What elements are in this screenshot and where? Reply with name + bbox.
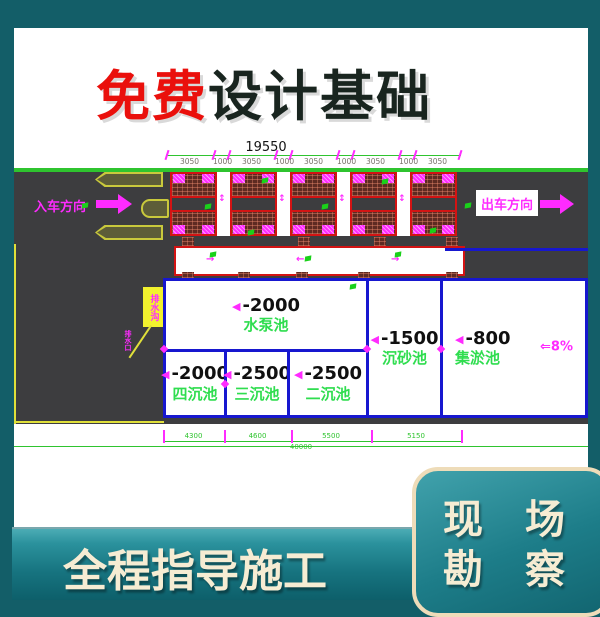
drain-connector: [298, 237, 310, 246]
dim-seg: 1000: [399, 157, 414, 166]
pool-depth: -2000: [171, 364, 229, 385]
dim-seg: 1000: [275, 157, 290, 166]
pool-name: 集淤池: [455, 349, 500, 367]
pool-sediment-4: ◀-2000 四沉池: [163, 349, 227, 418]
wash-bay: [350, 172, 397, 236]
dim-grand-value: 40000: [14, 443, 588, 451]
dim-seg: 3050: [166, 157, 213, 166]
pool-name: 沉砂池: [382, 349, 427, 367]
bay-lane: ↕: [217, 172, 230, 236]
bay-lane: ↕: [337, 172, 350, 236]
dim-seg: 3050: [290, 157, 337, 166]
dim-seg: 5500: [291, 432, 371, 440]
pool-depth: -800: [465, 329, 510, 350]
depth-marker-icon: ◀: [455, 334, 463, 345]
bay-lane: ↕: [277, 172, 290, 236]
exit-direction-label: 出车方向: [481, 194, 533, 213]
dimension-total-top: 19550: [166, 140, 366, 155]
depth-marker-icon: ◀: [232, 301, 240, 312]
wash-bay: [290, 172, 337, 236]
dim-seg: 5150: [371, 432, 461, 440]
entry-direction-label: 入车方向: [34, 196, 86, 215]
drain-channel: → ← →: [174, 246, 465, 276]
exit-direction-box: 出车方向: [476, 190, 538, 216]
page-title: 免费设计基础: [14, 52, 514, 131]
title-rest: 设计基础: [208, 65, 432, 128]
exit-arrow-icon: [540, 200, 560, 208]
title-highlight: 免费: [96, 65, 208, 128]
ground-edge-line: [14, 421, 164, 423]
wall-line: [445, 248, 588, 251]
drain-callout-note: 排水口: [124, 330, 131, 351]
entry-arrow-icon: [96, 200, 118, 208]
pool-sludge-collect: ◀-800 集淤池 ⇐8%: [440, 278, 588, 418]
traffic-island: [95, 172, 163, 187]
depth-marker-icon: ◀: [223, 369, 231, 380]
promo-poster: 免费设计基础 19550 3050 1000 3050 1000 3050 10…: [0, 0, 600, 600]
dim-seg: 3050: [414, 157, 461, 166]
footer-band-label: 全程指导施工: [30, 535, 360, 599]
pool-sediment-2: ◀-2500 二沉池: [287, 349, 369, 418]
traffic-island: [95, 225, 163, 240]
dimension-line-bottom: 4300 4600 5500 5150: [163, 428, 463, 442]
pool-depth: -2000: [242, 296, 300, 317]
pool-sand-settling: ◀-1500 沉砂池: [366, 278, 443, 418]
badge-line2: 勘 察: [416, 537, 592, 595]
depth-marker-icon: ◀: [370, 334, 378, 345]
pool-depth: -2500: [304, 364, 362, 385]
dim-seg: 1000: [337, 157, 352, 166]
dim-seg: 4300: [163, 432, 224, 440]
pool-name: 四沉池: [172, 385, 217, 403]
depth-marker-icon: ◀: [294, 369, 302, 380]
dim-seg: 1000: [213, 157, 228, 166]
dimension-grand-total: 40000: [14, 446, 588, 447]
depth-marker-icon: ◀: [161, 369, 169, 380]
drain-connector: [182, 237, 194, 246]
drain-connector: [374, 237, 386, 246]
pool-name: 二沉池: [305, 385, 350, 403]
pool-depth: -1500: [381, 329, 439, 350]
wash-bay: [410, 172, 457, 236]
drain-connector: [446, 237, 458, 246]
wash-bay: [230, 172, 277, 236]
pool-depth: -2500: [233, 364, 291, 385]
dim-seg: 3050: [352, 157, 399, 166]
pool-pump: ◀-2000 水泵池: [163, 278, 369, 352]
dim-seg: 4600: [224, 432, 291, 440]
drain-callout-box: 排水沟: [143, 287, 163, 327]
dim-seg: 3050: [228, 157, 275, 166]
pool-name: 三沉池: [234, 385, 279, 403]
slope-label: ⇐8%: [540, 339, 573, 354]
pool-sediment-3: ◀-2500 三沉池: [224, 349, 290, 418]
ground-edge-line: [14, 244, 16, 424]
pool-name: 水泵池: [243, 316, 288, 334]
bay-lane: ↕: [397, 172, 410, 236]
footer-badge: 现 场 勘 察: [412, 467, 600, 617]
drain-callout-label: 排水沟: [149, 294, 158, 321]
traffic-island: [141, 199, 169, 218]
wash-bays: ↕ ↕ ↕ ↕: [170, 172, 465, 236]
